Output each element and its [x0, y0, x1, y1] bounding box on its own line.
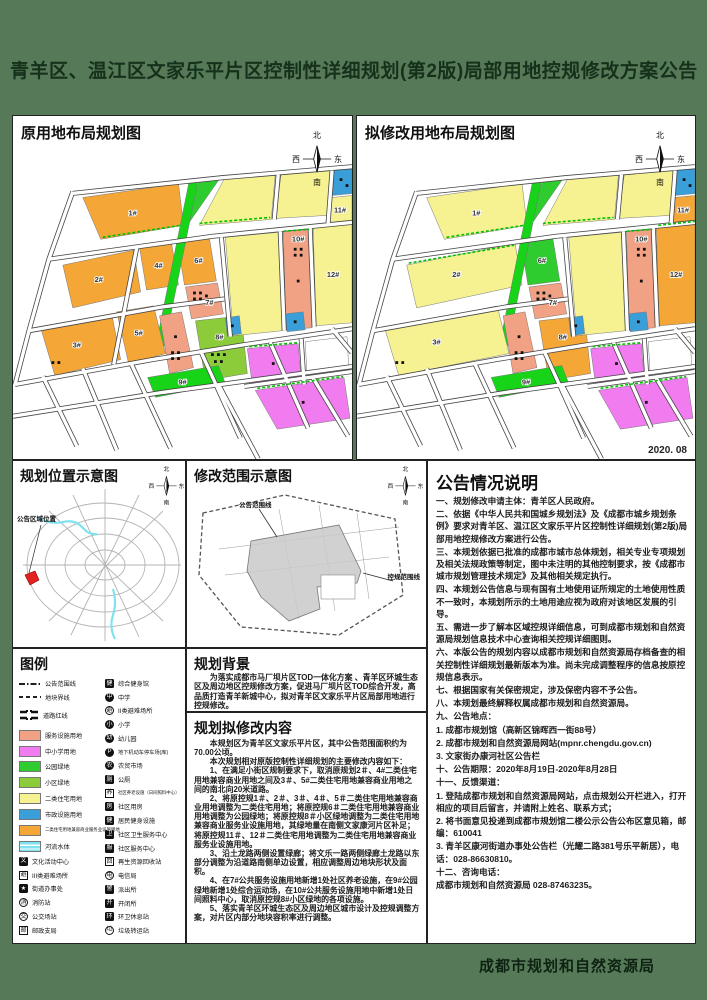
legend-label: 社区养老设施（日间照料中心） — [118, 790, 179, 796]
proposed-modifications-panel: 规划拟修改内容 本规划区为青羊区文家乐平片区，其中公告范围面积约为70.00公顷… — [186, 712, 427, 944]
announcement-notes-panel: 公告情况说明 一、规划修改申请主体：青羊区人民政府。二、依据《中华人民共和国城乡… — [427, 460, 696, 944]
legend-label: 市政设施用地 — [45, 810, 82, 819]
facility-icon — [231, 324, 234, 327]
notes-paragraph: 十二、咨询电话： — [436, 866, 688, 878]
planning-background-text: 为落实成都市马厂坝片区TOD一体化方案 、青羊区环城生态区及周边地区控规修改方案… — [194, 673, 420, 711]
notes-paragraph: 八、本规划最终解释权属成都市规划和自然资源局。 — [436, 697, 688, 709]
facility-icon — [217, 353, 220, 356]
location-map-title: 规划位置示意图 — [20, 466, 118, 486]
legend-item: 二类住宅用地 — [19, 793, 103, 804]
legend-item: 幼幼儿园 — [105, 734, 185, 743]
class3-shelter-icon: 避 — [19, 871, 28, 880]
facility-icon — [171, 351, 174, 354]
legend-item: 养社区养老设施（日间照料中心） — [105, 789, 185, 798]
resident-fitness-icon: 健 — [105, 816, 114, 825]
parcel-label: 11# — [677, 205, 690, 214]
legend-label: 地下机动车停车场(库) — [118, 749, 168, 756]
legend-label: 派出所 — [118, 885, 137, 894]
notes-paragraph: 六、本版公告的规划内容以成都市规划和自然资源局存档备查的相关控制性详细规划最新版… — [436, 646, 688, 683]
compass-north-label: 北 — [294, 130, 340, 141]
legend-label: 道路红线 — [43, 711, 68, 720]
legend-label: 邮政支局 — [32, 926, 57, 935]
legend-label: 公园绿地 — [45, 762, 70, 771]
parcel-label: 6# — [194, 256, 203, 265]
compass-east-label: 东 — [677, 154, 685, 165]
notes-paragraph: 1. 登陆成都市规划和自然资源局网站，点击规划公开栏进入，打开相应的项目后留言，… — [436, 790, 688, 814]
community-service-center-icon: 服 — [105, 844, 114, 853]
farmers-market-icon: 农 — [105, 761, 114, 770]
parcel-label: 5# — [134, 329, 143, 338]
facility-icon — [518, 335, 521, 338]
scope-map-title: 修改范围示意图 — [194, 466, 292, 486]
legend-item: 垃垃圾转运站 — [105, 926, 185, 935]
legend-title: 图例 — [20, 654, 48, 674]
facility-icon — [51, 361, 54, 364]
modification-paragraph: 本规划区为青羊区文家乐平片区，其中公告范围面积约为70.00公顷。 — [194, 739, 420, 757]
road — [218, 384, 258, 459]
original-landuse-map-panel: 原用地布局规划图 1#11#2#4#6#7#3#5#8#9#10#12# 北 西… — [12, 115, 353, 460]
facility-icon — [300, 248, 303, 251]
legend-item: 消消防站 — [19, 898, 103, 907]
compass-south-label: 南 — [389, 499, 422, 507]
legend-item: 服务设施用地 — [19, 730, 103, 741]
facility-icon — [395, 361, 398, 364]
culture-center-icon: 文 — [19, 857, 28, 866]
announcement-boundary-line — [19, 683, 41, 685]
compass-north-label: 北 — [637, 130, 683, 141]
parcel-label: 12# — [327, 270, 340, 279]
compass-east-label: 东 — [334, 154, 342, 165]
parcel-label: 1# — [472, 208, 481, 217]
legend-item: 健居民健身设施 — [105, 816, 185, 825]
modification-paragraph: 5、落实青羊区环城生态区及周边地区城市设计及控规调整方案，对片区内部分地块容积率… — [194, 904, 420, 922]
community-housing-icon: 房 — [105, 802, 114, 811]
parcel-label: 3# — [432, 338, 441, 347]
notes-paragraph: 四、本规划公告信息与现有国有土地使用证所规定的土地使用性质不一致时，本规划所示的… — [436, 583, 688, 620]
issuing-agency: 成都市规划和自然资源局 — [479, 955, 655, 976]
facility-icon — [637, 248, 640, 251]
legend-label: 地块界线 — [45, 693, 70, 702]
legend-item: 小区绿地 — [19, 777, 103, 788]
road — [427, 369, 461, 451]
facility-icon — [543, 292, 546, 295]
legend-item: 电电信局 — [105, 871, 185, 880]
compass-south-label: 南 — [294, 177, 340, 188]
notes-paragraph: 1. 成都市规划馆（高新区锦晖西一街88号） — [436, 724, 688, 736]
compass: 北 西 东 南 — [294, 130, 340, 188]
parcel-boundary-line — [19, 696, 41, 698]
legend-item: 二类住宅用地兼容商业服务业设施用地 — [19, 825, 103, 836]
legend-label: 二类住宅用地 — [45, 794, 82, 803]
compass-west-label: 西 — [387, 482, 393, 490]
legend-item: 小小学 — [105, 720, 185, 729]
proposed-modifications-text: 本规划区为青羊区文家乐平片区，其中公告范围面积约为70.00公顷。本次规划相对原… — [194, 739, 420, 922]
legend-item: ★街道办事处 — [19, 884, 103, 893]
facility-icon — [645, 401, 648, 404]
underground-parking-icon: P — [105, 748, 114, 757]
switching-station-icon: 开 — [105, 899, 114, 908]
legend-item: 开开闭所 — [105, 899, 185, 908]
facility-icon — [643, 254, 646, 257]
parcel-label: 10# — [635, 234, 648, 243]
facility-icon — [302, 401, 305, 404]
elderly-care-icon: 养 — [105, 789, 114, 798]
compass-north-label: 北 — [389, 465, 422, 473]
modification-paragraph: 4、在7#公共服务设施用地新增1处社区养老设施，在9#公园绿地新增1处综合运动场… — [194, 876, 420, 903]
modified-map-title: 拟修改用地布局规划图 — [365, 122, 515, 143]
compass-south-label: 南 — [150, 499, 183, 507]
announcement-scope-area — [247, 525, 361, 621]
compass-east-label: 东 — [179, 482, 185, 490]
legend-label: III类避难场所 — [32, 871, 68, 880]
compass-west-label: 西 — [148, 482, 154, 490]
notes-paragraph: 十一、反馈渠道： — [436, 776, 688, 788]
location-map-panel: 规划位置示意图 北 西 东 南 — [12, 460, 186, 648]
page-title: 青羊区、温江区文家乐平片区控制性详细规划(第2版)局部用地控规修改方案公告 — [10, 56, 697, 83]
legend-label: 公厕 — [118, 775, 130, 784]
compass: 北 西 东 南 — [637, 130, 683, 188]
facility-icon — [57, 361, 60, 364]
facility-icon — [223, 353, 226, 356]
legend-item: 警派出所 — [105, 885, 185, 894]
legend-label: 小学 — [118, 720, 130, 729]
facility-icon — [637, 254, 640, 257]
modified-landuse-map-panel: 拟修改用地布局规划图 1#11#2#6#7#3#8#9#10#12# 北 西 东… — [356, 115, 696, 460]
original-map-title: 原用地布局规划图 — [21, 122, 141, 143]
parcel-label: 12# — [670, 270, 683, 279]
legend-item: 卫社区卫生服务中心 — [105, 830, 185, 839]
notes-paragraph: 3. 青羊区康河街道办事处公告栏（光耀二路381号乐平新居），电话：028-86… — [436, 840, 688, 864]
legend-label: 再生资源回收站 — [118, 857, 161, 866]
legend-label: II类避难场所 — [118, 706, 152, 715]
legend-label: 社区用房 — [118, 802, 143, 811]
legend-column-1: 公告范围线地块界线道路红线服务设施用地中小学用地公园绿地小区绿地二类住宅用地市政… — [19, 679, 103, 935]
facility-icon — [297, 280, 300, 283]
road — [83, 369, 117, 451]
legend-label: 消防站 — [32, 898, 51, 907]
legend-item: 农农贸市场 — [105, 761, 185, 770]
legend-item: 邮邮政支局 — [19, 926, 103, 935]
facility-icon — [205, 295, 208, 298]
service-facility-land — [19, 730, 41, 741]
garbage-transfer-icon: 垃 — [105, 926, 114, 935]
compass-needle-icon — [302, 144, 332, 174]
facility-icon — [220, 360, 223, 363]
compass-needle-icon — [645, 144, 675, 174]
legend-item: 中中学 — [105, 693, 185, 702]
parcel-label: 7# — [205, 298, 214, 307]
notes-paragraph: 十、公告期限：2020年8月19日-2020年8月28日 — [436, 763, 688, 775]
control-boundary-label: 控规范围线 — [388, 571, 421, 581]
legend-panel: 图例 公告范围线地块界线道路红线服务设施用地中小学用地公园绿地小区绿地二类住宅用… — [12, 648, 186, 944]
facility-icon — [521, 351, 524, 354]
parcel-label: 8# — [215, 333, 224, 342]
legend-item: 环环卫休息站 — [105, 912, 185, 921]
facility-icon — [300, 254, 303, 257]
parcel-label: 4# — [154, 261, 163, 270]
legend-item: 文文化活动中心 — [19, 857, 103, 866]
legend-item: 房社区用房 — [105, 802, 185, 811]
kindergarten-icon: 幼 — [105, 734, 114, 743]
compass: 北 西 东 南 — [389, 465, 422, 507]
facility-icon — [683, 178, 686, 181]
facility-icon — [515, 351, 518, 354]
facility-icon — [637, 320, 640, 323]
legend-label: 垃圾转运站 — [118, 926, 149, 935]
notes-paragraph: 2. 将书面意见投递到成都市规划馆二楼公示公告公布区意见箱，邮编：610041 — [436, 815, 688, 839]
compass: 北 西 东 南 — [150, 465, 183, 507]
facility-icon — [543, 298, 546, 301]
parcel-label: 11# — [334, 205, 347, 214]
legend-label: 开闭所 — [118, 899, 137, 908]
legend-item: 公园绿地 — [19, 761, 103, 772]
facility-icon — [214, 360, 217, 363]
facility-icon — [574, 324, 577, 327]
legend-item: 交公交场站 — [19, 912, 103, 921]
community-health-center-icon: 卫 — [105, 830, 114, 839]
legend-label: 街道办事处 — [32, 884, 63, 893]
compass-west-label: 西 — [635, 154, 643, 165]
municipal-facility-land — [19, 809, 41, 820]
announcement-notes-text: 一、规划修改申请主体：青羊区人民政府。二、依据《中华人民共和国城乡规划法》及《成… — [436, 495, 688, 892]
facility-icon — [689, 184, 692, 187]
telecom-office-icon: 电 — [105, 871, 114, 880]
parcel — [160, 312, 194, 374]
legend-item: 服社区服务中心 — [105, 844, 185, 853]
legend-label: 环卫休息站 — [118, 912, 149, 921]
gym-icon: 健 — [105, 679, 114, 688]
class2-residential-land — [19, 793, 41, 804]
legend-item: P地下机动车停车场(库) — [105, 748, 185, 757]
facility-icon — [294, 248, 297, 251]
parcel-label: 9# — [178, 377, 187, 386]
facility-icon — [199, 292, 202, 295]
modification-paragraph: 3、沿土龙路两侧设置绿廊；将文乐一路两侧绿廊土龙路以东部分调整为沿道路南侧单边设… — [194, 849, 420, 876]
facility-icon — [346, 184, 349, 187]
public-toilet-icon: 厕 — [105, 775, 114, 784]
compass-east-label: 东 — [418, 482, 424, 490]
notes-paragraph: 九、公告地点： — [436, 710, 688, 722]
announcement-area-label: 公告区域位置 — [17, 513, 56, 523]
legend-item: 河流水体 — [19, 841, 103, 852]
parcel-label: 8# — [559, 333, 568, 342]
bus-depot-icon: 交 — [19, 912, 28, 921]
facility-icon — [401, 361, 404, 364]
map-date: 2020. 08 — [648, 445, 687, 456]
notes-paragraph: 二、依据《中华人民共和国城乡规划法》及《成都市城乡规划条例》要求对青羊区、温江区… — [436, 508, 688, 545]
legend-label: 幼儿园 — [118, 734, 137, 743]
facility-icon — [211, 353, 214, 356]
facility-icon — [515, 357, 518, 360]
legend-item: 厕公厕 — [105, 775, 185, 784]
facility-icon — [177, 357, 180, 360]
legend-item: 避III类避难场所 — [19, 871, 103, 880]
police-station-icon: 警 — [105, 885, 114, 894]
legend-label: 服务设施用地 — [45, 731, 82, 740]
notes-paragraph: 五、需进一步了解本区域控规详细信息，可到成都市规划和自然资源局规划信息技术中心查… — [436, 621, 688, 645]
legend-label: 公告范围线 — [45, 679, 76, 688]
legend-label: 电信局 — [118, 871, 137, 880]
primary-school-icon: 小 — [105, 720, 114, 729]
compass-north-label: 北 — [150, 465, 183, 473]
parcel-label: 7# — [549, 298, 558, 307]
facility-icon — [174, 335, 177, 338]
parcel-label: 9# — [522, 377, 531, 386]
modification-paragraph: 1、在满足小街区规制要求下，取消原规划2＃、4#二类住宅用地兼容商业用地之间及3… — [194, 766, 420, 793]
neighborhood-green-land — [19, 777, 41, 788]
announcement-scope-label: 公告范围线 — [239, 499, 272, 509]
notes-paragraph: 一、规划修改申请主体：青羊区人民政府。 — [436, 495, 688, 507]
fire-station-icon: 消 — [19, 898, 28, 907]
planning-background-title: 规划背景 — [194, 654, 250, 674]
notes-paragraph: 3. 文家街办康河社区公告栏 — [436, 750, 688, 762]
legend-label: 居民健身设施 — [118, 816, 155, 825]
parcel-label: 3# — [73, 341, 82, 350]
compass-needle-icon — [156, 475, 178, 497]
notes-paragraph: 三、本规划依据已批准的成都市城市总体规划，相关专业专项规划及相关法规政策等制定，… — [436, 546, 688, 583]
road — [562, 384, 602, 459]
sanitation-rest-icon: 环 — [105, 912, 114, 921]
middle-school-icon: 中 — [105, 693, 114, 702]
legend-label: 综合健身馆 — [118, 679, 149, 688]
facility-icon — [537, 298, 540, 301]
facility-icon — [171, 357, 174, 360]
legend-item: 中小学用地 — [19, 746, 103, 757]
notes-paragraph: 成都市规划和自然资源局 028-87463235。 — [436, 879, 688, 891]
parcel-label: 1# — [128, 208, 137, 217]
announcement-area-marker — [25, 571, 39, 585]
notes-paragraph: 2. 成都市规划和自然资源局网站(mpnr.chengdu.gov.cn) — [436, 737, 688, 749]
legend-column-2: 健综合健身馆中中学避II类避难场所小小学幼幼儿园P地下机动车停车场(库)农农贸市… — [105, 679, 185, 935]
facility-icon — [272, 362, 275, 365]
legend-label: 社区卫生服务中心 — [118, 830, 168, 839]
river-water — [19, 841, 41, 852]
scope-map-panel: 修改范围示意图 北 西 东 南 公告范围线 控规范围线 — [186, 460, 427, 648]
compass-west-label: 西 — [292, 154, 300, 165]
post-office-icon: 邮 — [19, 926, 28, 935]
residential-commercial-mixed-land — [19, 825, 41, 836]
parcel-label: 2# — [95, 275, 104, 284]
legend-item: 道路红线 — [19, 707, 103, 725]
announcement-notes-title: 公告情况说明 — [436, 469, 538, 494]
road-red-line — [19, 707, 39, 725]
school-land — [19, 746, 41, 757]
legend-item: 地块界线 — [19, 693, 103, 702]
legend-label: 小区绿地 — [45, 778, 70, 787]
recycling-station-icon: 回 — [105, 857, 114, 866]
facility-icon — [294, 254, 297, 257]
legend-item: 避II类避难场所 — [105, 706, 185, 715]
announcement-poster: 青羊区、温江区文家乐平片区控制性详细规划(第2版)局部用地控规修改方案公告 原用… — [0, 0, 707, 1000]
legend-label: 公交场站 — [32, 912, 57, 921]
facility-icon — [615, 362, 618, 365]
modification-paragraph: 2、将原控规1＃、2＃、3＃、4＃、5＃二类住宅用地兼容商业用地调整为二类住宅用… — [194, 794, 420, 849]
facility-icon — [340, 178, 343, 181]
legend-item: 市政设施用地 — [19, 809, 103, 820]
legend-item: 公告范围线 — [19, 679, 103, 688]
planning-background-panel: 规划背景 为落实成都市马厂坝片区TOD一体化方案 、青羊区环城生态区及周边地区控… — [186, 648, 427, 712]
street-office-icon: ★ — [19, 884, 28, 893]
class2-shelter-icon: 避 — [105, 706, 114, 715]
legend-label: 农贸市场 — [118, 761, 143, 770]
legend-label: 河流水体 — [45, 842, 70, 851]
parcel-label: 10# — [292, 234, 305, 243]
facility-icon — [193, 292, 196, 295]
parcel-label: 2# — [452, 270, 461, 279]
facility-icon — [294, 320, 297, 323]
compass-needle-icon — [395, 475, 417, 497]
parcel-label: 6# — [538, 256, 547, 265]
proposed-modifications-title: 规划拟修改内容 — [194, 718, 292, 738]
facility-icon — [537, 292, 540, 295]
legend-label: 中学 — [118, 693, 130, 702]
legend-item: 健综合健身馆 — [105, 679, 185, 688]
legend-label: 中小学用地 — [45, 747, 76, 756]
compass-south-label: 南 — [637, 177, 683, 188]
facility-icon — [640, 280, 643, 283]
parcel — [503, 312, 537, 374]
legend-label: 社区服务中心 — [118, 844, 155, 853]
notes-paragraph: 七、根据国家有关保密规定，涉及保密内容不予公告。 — [436, 684, 688, 696]
facility-icon — [199, 298, 202, 301]
legend-item: 回再生资源回收站 — [105, 857, 185, 866]
facility-icon — [521, 357, 524, 360]
legend-label: 文化活动中心 — [32, 857, 69, 866]
planning-background-paragraph: 为落实成都市马厂坝片区TOD一体化方案 、青羊区环城生态区及周边地区控规修改方案… — [194, 673, 420, 711]
facility-icon — [193, 298, 196, 301]
park-green-land — [19, 761, 41, 772]
facility-icon — [177, 351, 180, 354]
facility-icon — [643, 248, 646, 251]
